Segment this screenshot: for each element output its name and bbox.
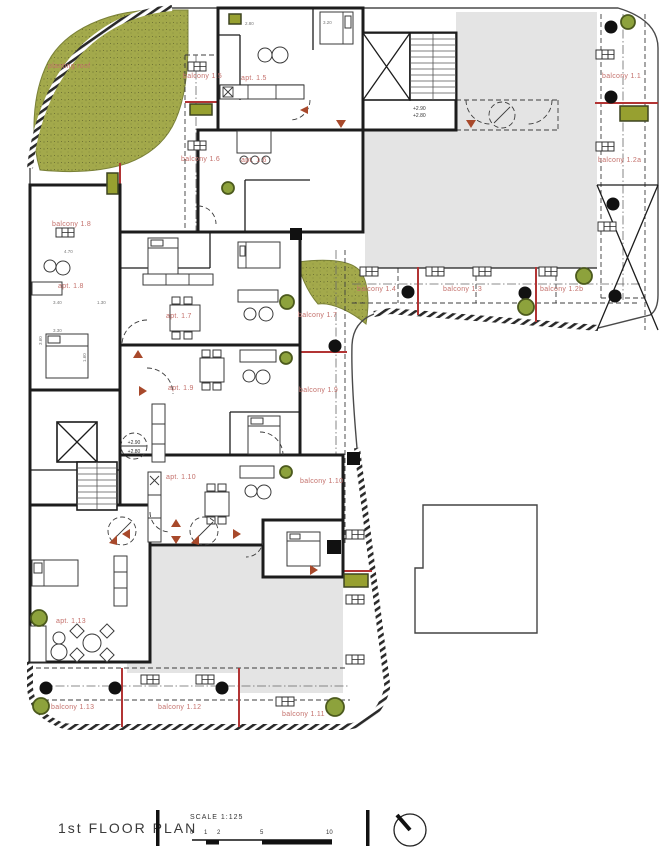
column-icon: [40, 682, 53, 695]
column-icon: [519, 287, 532, 300]
planting-roof-area: [34, 10, 188, 172]
column-icon: [402, 286, 415, 299]
kitchen-counter-icon: [220, 85, 304, 99]
planter-icon: [518, 299, 534, 315]
column-icon: [290, 228, 302, 240]
elevator-icon: [57, 422, 97, 462]
hatched-edge-right: [374, 311, 598, 328]
balcony-1-7-label: balcony 1.7: [298, 312, 337, 319]
planter-icon: [280, 352, 292, 364]
planting-roof-label: planting roof: [48, 63, 90, 70]
kitchen-counter-icon: [148, 472, 161, 542]
column-icon: [609, 290, 622, 303]
balcony-1-11-label: balcony 1.11: [282, 711, 325, 718]
balcony-1-4-label: balcony 1.4: [357, 286, 396, 293]
planter-box-icon: [190, 104, 212, 115]
dimension-text: 1.30: [97, 300, 106, 305]
column-icon: [605, 21, 618, 34]
dimension-text: 3.30: [53, 328, 62, 333]
sheet-title: 1st FLOOR PLAN: [58, 820, 197, 836]
scale-tick: 1: [204, 830, 208, 836]
balcony-1-5-label: balcony 1.5: [183, 73, 222, 80]
balcony-1-8-label: balcony 1.8: [52, 221, 91, 228]
apt-1-10-label: apt. 1.10: [166, 474, 196, 481]
bed-icon: [287, 532, 320, 566]
apt-1-13-label: apt. 1.13: [56, 618, 86, 625]
dimension-text: 3.20: [323, 20, 332, 25]
column-icon: [327, 540, 341, 554]
balcony-1-13-label: balcony 1.13: [51, 704, 94, 711]
planter-box-icon: [229, 14, 241, 24]
level-lower-text: +2.80: [128, 449, 141, 455]
kitchen-counter-icon: [152, 404, 165, 462]
bed-icon: [32, 560, 78, 586]
apt-1-7-label: apt. 1.7: [166, 313, 192, 320]
scale-tick: 5: [260, 830, 264, 836]
staircase-icon: [410, 33, 456, 100]
planter-icon: [222, 182, 234, 194]
planter-icon: [621, 15, 635, 29]
planter-icon: [326, 698, 344, 716]
staircase-icon: [77, 462, 117, 510]
kitchen-counter-icon: [143, 274, 213, 285]
kitchen-counter-icon: [114, 556, 127, 606]
planter-box-icon: [620, 106, 648, 121]
balcony-1-12-label: balcony 1.12: [158, 704, 201, 711]
bed-icon: [238, 242, 280, 268]
divider-bar: [366, 810, 370, 846]
adjacent-building-outline: [415, 505, 537, 633]
floor-plan-page: planting roof apt. 1.5 apt. 1.6 apt. 1.7…: [0, 0, 667, 855]
bed-icon: [320, 12, 353, 44]
planter-box-icon: [107, 173, 118, 194]
dimension-text: 2.80: [245, 21, 254, 26]
bed-icon: [248, 416, 280, 454]
balcony-1-9-label: balcony 1.9: [299, 387, 338, 394]
apt-1-6-label: apt. 1.6: [241, 157, 267, 164]
column-icon: [216, 682, 229, 695]
scale-tick: 10: [326, 830, 333, 836]
balcony-1-3-label: balcony 1.3: [443, 286, 482, 293]
dimension-text: 1.60: [82, 353, 87, 362]
divider-bar: [156, 810, 160, 846]
planter-icon: [280, 466, 292, 478]
scale-label: SCALE 1:125: [190, 814, 243, 821]
level-upper-text: +2.90: [413, 106, 426, 112]
planter-icon: [33, 698, 49, 714]
planter-icon: [31, 610, 47, 626]
dimension-text: 3.40: [53, 300, 62, 305]
column-icon: [329, 340, 342, 353]
floor-plan-drawing: planting roof apt. 1.5 apt. 1.6 apt. 1.7…: [0, 0, 667, 855]
dimension-text: 4.70: [64, 249, 73, 254]
balcony-1-10-label: balcony 1.10: [300, 478, 343, 485]
level-lower-text: +2.80: [413, 113, 426, 119]
column-icon: [607, 198, 620, 211]
column-icon: [347, 452, 360, 465]
apt-1-6-walls: [198, 130, 363, 232]
balcony-1-1-label: balcony 1.1: [602, 73, 641, 80]
balcony-1-2b-label: balcony 1.2b: [540, 286, 583, 293]
column-icon: [605, 91, 618, 104]
elevator-icon: [363, 33, 410, 100]
level-upper-text: +2.90: [128, 440, 141, 446]
planter-box-icon: [344, 574, 368, 587]
planter-icon: [280, 295, 294, 309]
scale-tick: 2: [217, 830, 221, 836]
scale-bar: 0 1 2 5 10: [190, 830, 333, 845]
balcony-1-2a-label: balcony 1.2a: [598, 157, 641, 164]
bed-icon: [148, 238, 178, 278]
column-icon: [109, 682, 122, 695]
title-block: 1st FLOOR PLAN SCALE 1:125 0 1 2 5 10: [58, 810, 426, 846]
planter-icon: [576, 268, 592, 284]
apt-1-5-label: apt. 1.5: [241, 75, 267, 82]
north-arrow: [394, 814, 426, 846]
dimension-text: 3.60: [38, 336, 43, 345]
balcony-1-6-label: balcony 1.6: [181, 156, 220, 163]
apt-1-8-label: apt. 1.8: [58, 283, 84, 290]
apt-1-9-label: apt. 1.9: [168, 385, 194, 392]
